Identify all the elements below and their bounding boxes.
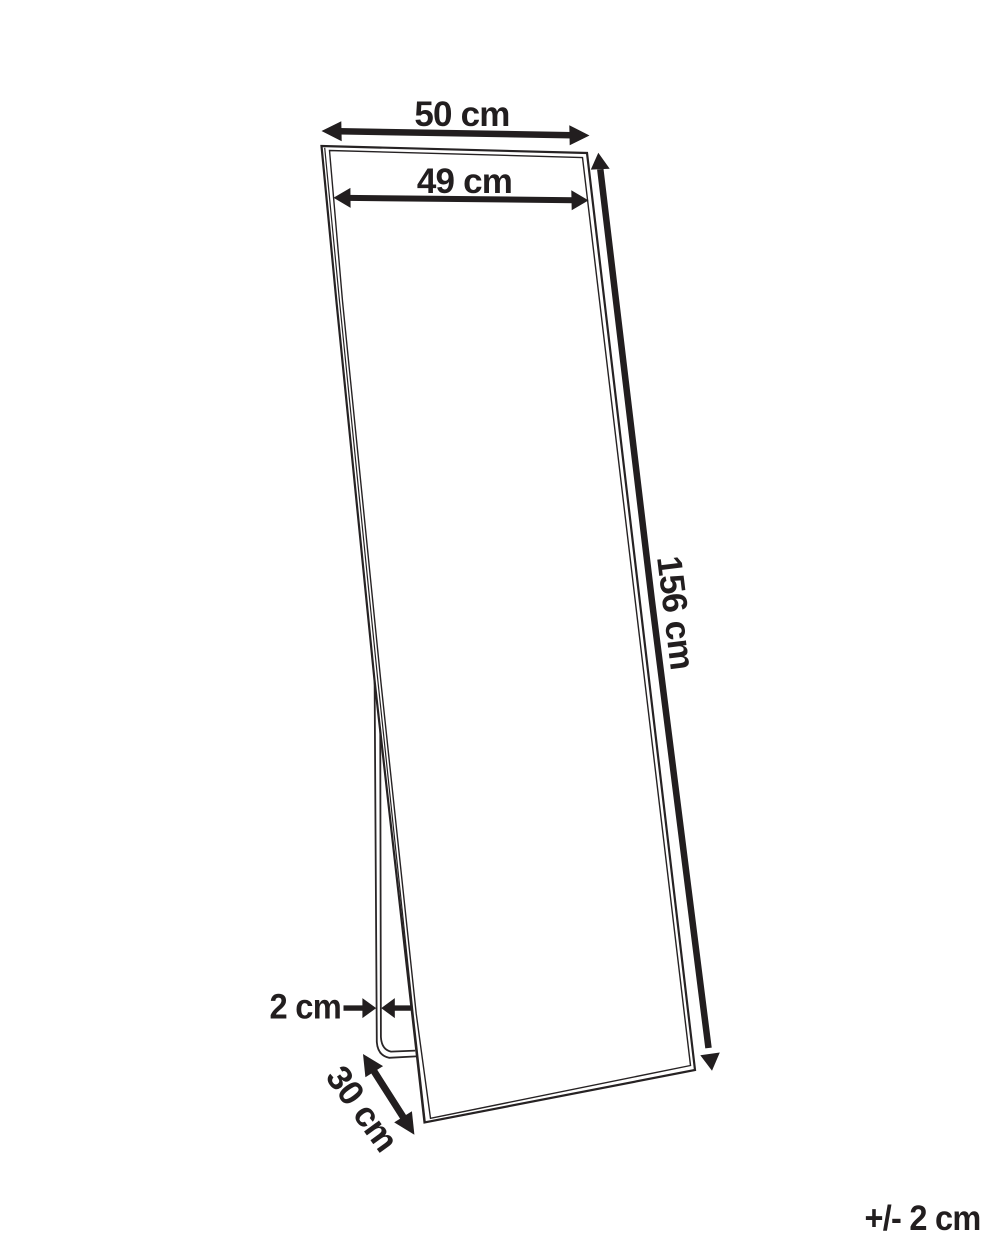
svg-text:2 cm: 2 cm [270,987,342,1026]
svg-text:+/- 2 cm: +/- 2 cm [865,1199,981,1238]
svg-text:49 cm: 49 cm [417,162,512,201]
svg-text:50 cm: 50 cm [414,95,509,134]
